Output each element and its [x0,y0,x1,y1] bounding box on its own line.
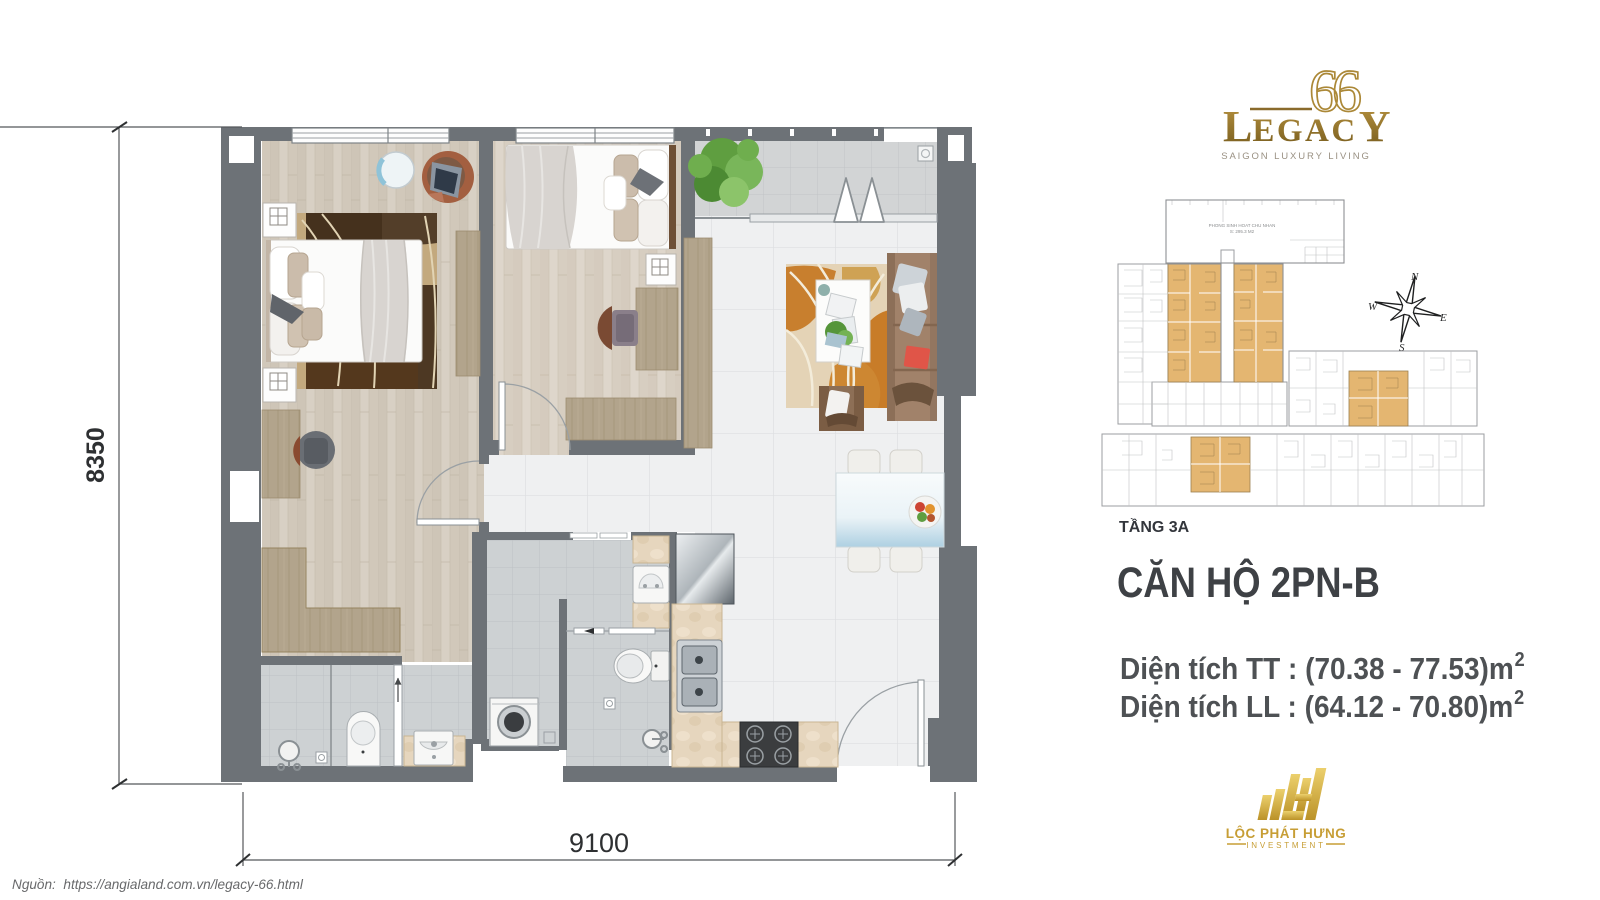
svg-text:LỘC PHÁT HƯNG: LỘC PHÁT HƯNG [1226,826,1346,841]
svg-text:N: N [1410,271,1419,283]
svg-text:S: S [1399,342,1405,354]
svg-text:9100: 9100 [569,828,629,858]
svg-text:Nguồn: https://angialand.com.: Nguồn: https://angialand.com.vn/legacy-6… [12,877,304,892]
svg-text:W: W [1368,301,1378,313]
svg-text:66: 66 [1309,58,1361,124]
svg-text:TẦNG 3A: TẦNG 3A [1119,517,1190,536]
svg-text:INVESTMENT: INVESTMENT [1246,841,1326,850]
svg-text:SAIGON LUXURY LIVING: SAIGON LUXURY LIVING [1221,151,1371,162]
svg-text:8350: 8350 [82,427,110,483]
svg-text:Diện tích LL : (64.12 - 70.80): Diện tích LL : (64.12 - 70.80)m2 [1120,687,1524,724]
svg-text:Diện tích TT : (70.38 - 77.53): Diện tích TT : (70.38 - 77.53)m2 [1120,649,1525,686]
svg-text:E: E [1439,312,1447,324]
svg-text:CĂN HỘ 2PN-B: CĂN HỘ 2PN-B [1117,557,1380,607]
svg-text:S: 295.3 M2: S: 295.3 M2 [1230,229,1255,234]
svg-text:PHONG SINH HOAT CHU NHAN: PHONG SINH HOAT CHU NHAN [1209,223,1276,228]
